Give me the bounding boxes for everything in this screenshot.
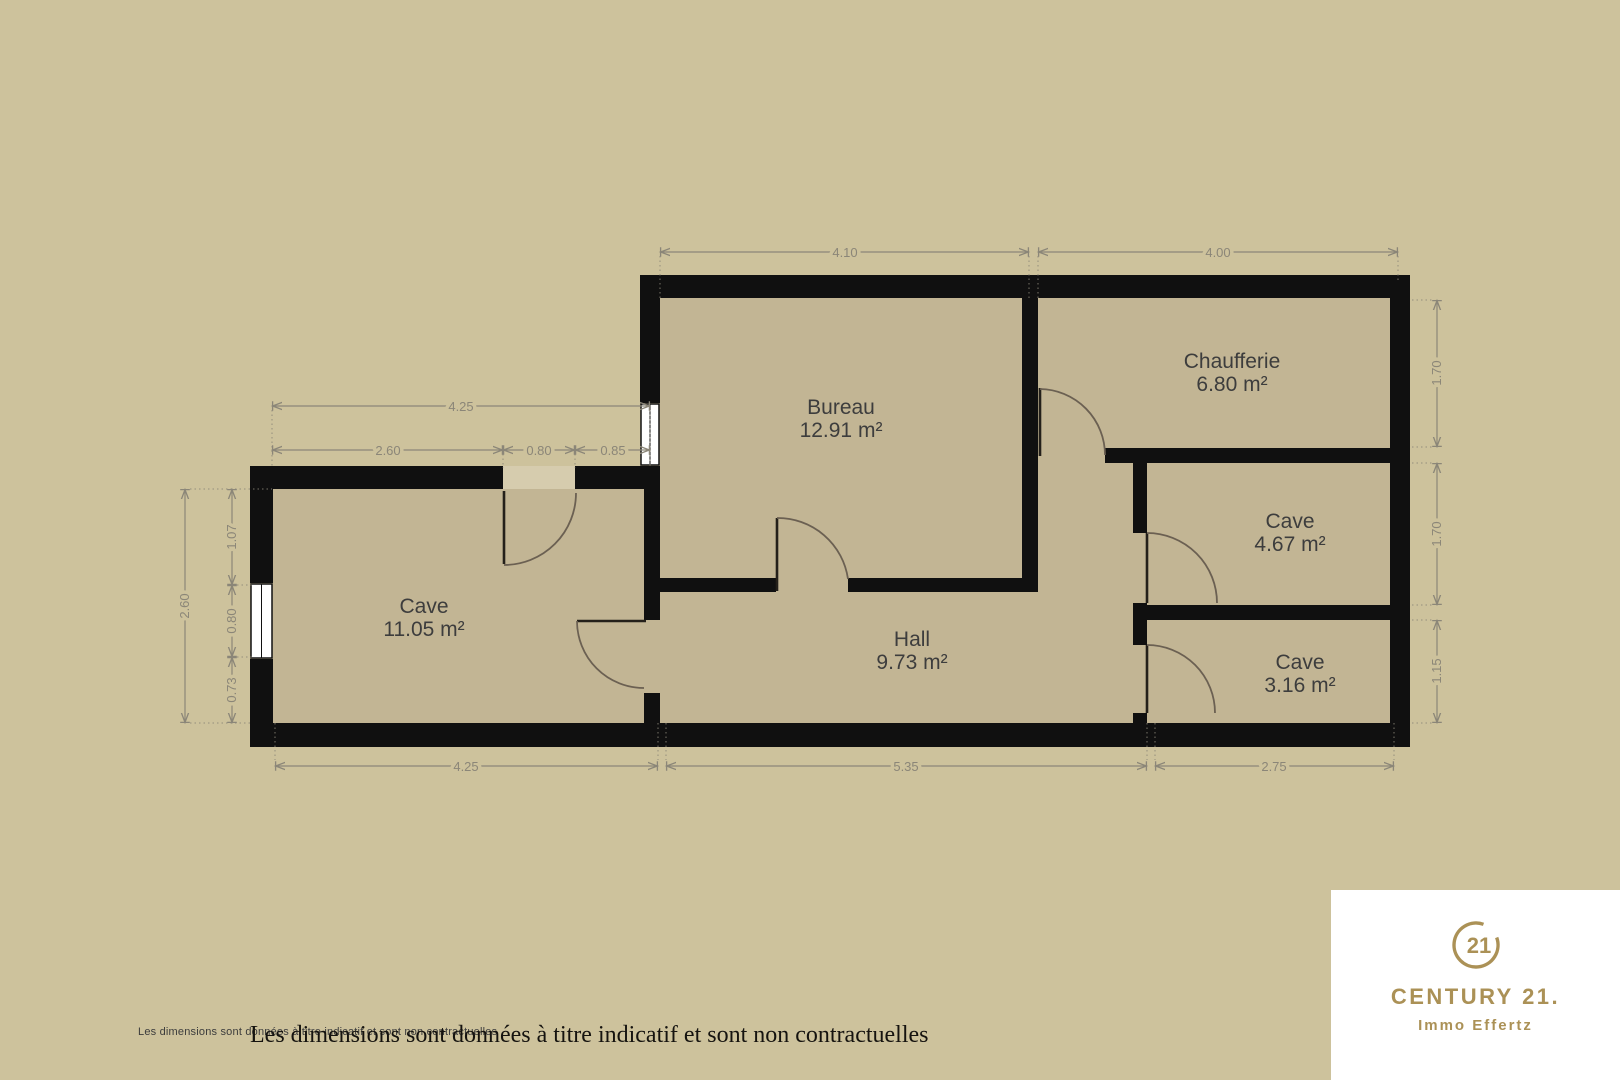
century21-seal-icon: 21 (1447, 916, 1505, 974)
wall-segment (250, 466, 273, 583)
dimension: 4.00 (1038, 245, 1398, 260)
dimension: 0.80 (503, 443, 575, 458)
room-name: Cave (1265, 510, 1314, 533)
dimension-label: 1.07 (224, 524, 239, 549)
window-icon (251, 584, 272, 658)
dimension-label: 0.85 (600, 443, 625, 458)
dimension-label: 1.70 (1429, 360, 1444, 385)
wall-segment (640, 275, 1410, 298)
dimension: 1.70 (1429, 463, 1444, 605)
dimension: 4.25 (275, 759, 658, 774)
room-name: Bureau (807, 396, 875, 419)
dimension-label: 4.25 (453, 759, 478, 774)
wall-segment (1105, 448, 1390, 463)
wall-segment (250, 723, 1410, 747)
dimension: 1.07 (224, 489, 239, 585)
room-area: 12.91 m² (800, 419, 883, 442)
dimension: 1.15 (1429, 620, 1444, 723)
dimension: 4.25 (272, 399, 650, 414)
room-area: 4.67 m² (1254, 533, 1325, 556)
door-threshold (503, 466, 575, 489)
room-name: Cave (1275, 651, 1324, 674)
dimension: 5.35 (666, 759, 1147, 774)
dimension-label: 1.70 (1429, 521, 1444, 546)
wall-segment (644, 693, 660, 723)
dimension: 0.80 (224, 585, 239, 657)
dimension: 0.73 (224, 657, 239, 723)
wall-segment (644, 489, 660, 620)
wall-segment (1390, 275, 1410, 747)
dimension: 2.60 (272, 443, 503, 458)
room-name: Cave (399, 595, 448, 618)
wall-segment (1133, 713, 1147, 723)
floorplan-page: 4.10 4.00 4.25 2.60 0.80 0.85 (0, 0, 1620, 1080)
wall-segment (1133, 603, 1147, 645)
dimension-label: 0.80 (526, 443, 551, 458)
dimension: 4.10 (660, 245, 1029, 260)
wall-segment (1133, 463, 1147, 533)
wall-segment (660, 578, 776, 592)
room-label: Chaufferie 6.80 m² (1184, 350, 1281, 396)
wall-segment (640, 275, 660, 403)
dimension: 2.60 (177, 489, 192, 723)
dimension-label: 2.75 (1261, 759, 1286, 774)
floor-area (250, 275, 1410, 747)
dimension-label: 4.25 (448, 399, 473, 414)
dimension-label: 1.15 (1429, 658, 1444, 683)
dimension-label: 0.73 (224, 677, 239, 702)
disclaimer-large: Les dimensions sont données à titre indi… (250, 1022, 929, 1049)
room-name: Hall (894, 628, 930, 651)
dimension: 2.75 (1155, 759, 1394, 774)
century21-wordmark: CENTURY 21. (1391, 984, 1560, 1010)
dimension-label: 2.60 (177, 593, 192, 618)
room-area: 3.16 m² (1264, 674, 1335, 697)
room-area: 9.73 m² (876, 651, 947, 674)
wall-segment (848, 578, 1022, 592)
dimension: 1.70 (1429, 300, 1444, 447)
dimension-label: 2.60 (375, 443, 400, 458)
room-name: Chaufferie (1184, 350, 1281, 373)
dimension-label: 5.35 (893, 759, 918, 774)
wall-segment (250, 466, 503, 489)
room-label: Bureau 12.91 m² (800, 396, 883, 442)
room-area: 6.80 m² (1196, 373, 1267, 396)
century21-logo-panel: 21 CENTURY 21. Immo Effertz (1331, 890, 1620, 1080)
dimension: 0.85 (575, 443, 650, 458)
agency-name: Immo Effertz (1418, 1017, 1533, 1034)
room-area: 11.05 m² (383, 618, 464, 641)
wall-segment (1147, 605, 1390, 620)
dimension-label: 0.80 (224, 608, 239, 633)
wall-segment (575, 466, 660, 489)
seal-number: 21 (1466, 933, 1490, 958)
wall-segment (1022, 298, 1038, 592)
dimension-label: 4.10 (832, 245, 857, 260)
dimension-label: 4.00 (1205, 245, 1230, 260)
